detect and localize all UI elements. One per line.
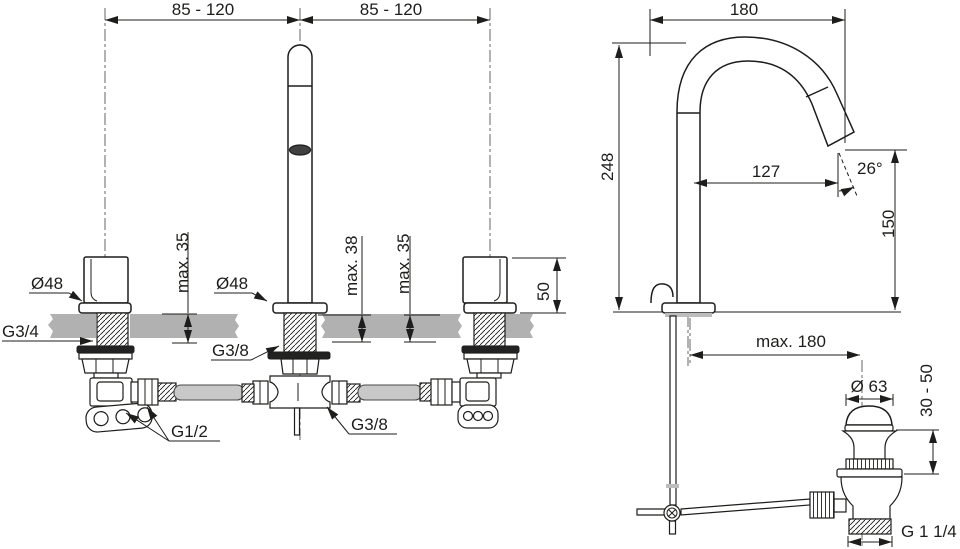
dimension-hole-spacing: 85 - 120 85 - 120 xyxy=(105,0,490,20)
hose-stub xyxy=(131,382,138,402)
label-g12: G1/2 xyxy=(171,422,208,441)
flex-hose-right xyxy=(358,385,422,400)
deck-segment xyxy=(505,314,534,338)
spout-tube xyxy=(288,45,312,303)
mixer-body xyxy=(270,376,330,408)
lever-rod-to-drain xyxy=(681,499,810,515)
label-g114: G 1 1/4 xyxy=(901,522,957,541)
dim-max35-right: max. 35 xyxy=(394,234,413,294)
popup-rod xyxy=(670,316,676,505)
dim-spacing-left: 85 - 120 xyxy=(172,0,234,19)
hose-hex-nut xyxy=(138,379,158,405)
deck-segment xyxy=(130,314,239,338)
hose-crimp xyxy=(158,383,176,401)
valve-inlet xyxy=(458,405,498,428)
pivot-stub xyxy=(670,521,676,534)
rod-coupling-knurl xyxy=(810,492,834,518)
dim-150: 150 xyxy=(879,210,898,238)
label-g34: G3/4 xyxy=(2,322,39,341)
valve-slot xyxy=(466,382,489,401)
hex-nut xyxy=(82,359,129,373)
valve-neck xyxy=(94,373,118,378)
gasket xyxy=(77,346,134,353)
dimension-30-50: 30 - 50 xyxy=(896,364,939,474)
hose-crimp xyxy=(242,384,254,402)
spout-flange xyxy=(273,303,327,313)
waste-knurl-band xyxy=(846,459,893,469)
dim-max38: max. 38 xyxy=(342,236,361,296)
dim-180: 180 xyxy=(730,0,758,19)
left-handle-assembly xyxy=(77,257,153,433)
handle-flange xyxy=(464,303,516,313)
hex-nut xyxy=(467,359,514,373)
technical-drawing-page: 85 - 120 85 - 120 xyxy=(0,0,960,549)
dimension-handle-height: 50 xyxy=(512,258,566,313)
spout-nut xyxy=(281,359,319,374)
threaded-shank xyxy=(97,313,128,346)
waste-bottom-thread xyxy=(849,519,891,534)
right-handle-assembly xyxy=(458,257,519,428)
hose-hex-nut xyxy=(431,379,452,405)
dim-30-50: 30 - 50 xyxy=(917,364,936,417)
handle-flange xyxy=(79,303,131,313)
label-outlet-thread: G3/8 xyxy=(327,407,397,434)
dim-127: 127 xyxy=(752,162,780,181)
deck-segment xyxy=(48,314,96,338)
dim-248: 248 xyxy=(598,153,617,181)
lever-bar-left xyxy=(637,509,665,515)
label-g38-port: G3/8 xyxy=(351,415,388,434)
valve-slot xyxy=(97,382,123,401)
popup-knob xyxy=(651,284,673,303)
deck-segment xyxy=(321,314,462,338)
dim-dia63: Ø 63 xyxy=(851,377,888,396)
faucet-dimension-drawing: 85 - 120 85 - 120 xyxy=(0,0,960,549)
side-view: 180 248 127 26° 150 max. 180 xyxy=(598,0,957,548)
dimension-248: 248 xyxy=(598,43,686,310)
plug-dome xyxy=(846,406,892,425)
waste-body xyxy=(841,477,902,519)
label-spout-flange-dia: Ø48 xyxy=(214,274,267,301)
spout-assembly-front xyxy=(253,45,347,435)
rod-clip xyxy=(666,484,679,488)
dimension-127-and-angle: 127 26° xyxy=(694,153,883,197)
dim-max180: max. 180 xyxy=(756,332,826,351)
spout-threaded-shank xyxy=(284,313,316,352)
mixer-right-port xyxy=(332,381,347,404)
waste-brim xyxy=(837,469,902,477)
rod-coupling-stub xyxy=(834,499,846,512)
washer xyxy=(79,353,132,359)
dim-50: 50 xyxy=(534,282,553,301)
spout-outlet xyxy=(290,145,311,155)
threaded-shank xyxy=(474,313,505,346)
label-g38-shank: G3/8 xyxy=(212,341,249,360)
label-diameter-48-left: Ø48 xyxy=(31,274,63,293)
label-diameter-48-center: Ø48 xyxy=(216,274,248,293)
gasket xyxy=(462,346,519,353)
washer xyxy=(464,353,517,359)
flex-hose-left xyxy=(174,385,244,400)
dimension-max180: max. 180 xyxy=(690,318,860,363)
front-view: 85 - 120 85 - 120 xyxy=(2,0,566,443)
mixer-pin xyxy=(295,408,300,435)
waste-assembly xyxy=(810,406,902,534)
hose-stub xyxy=(452,382,460,402)
spout-gasket xyxy=(268,352,330,359)
base-flange xyxy=(662,303,715,313)
valve-neck xyxy=(477,373,501,378)
dim-spacing-right: 85 - 120 xyxy=(360,0,422,19)
dim-max35-left: max. 35 xyxy=(173,233,192,293)
dimension-dia63: Ø 63 xyxy=(846,377,893,406)
valve-inlet xyxy=(85,402,153,433)
dim-angle-26: 26° xyxy=(857,159,883,178)
hose-crimp xyxy=(420,383,432,401)
waste-neck xyxy=(843,431,896,459)
plug-ring xyxy=(845,425,893,431)
label-left-flange-dia: Ø48 xyxy=(29,274,82,301)
mixer-left-port xyxy=(253,381,268,404)
